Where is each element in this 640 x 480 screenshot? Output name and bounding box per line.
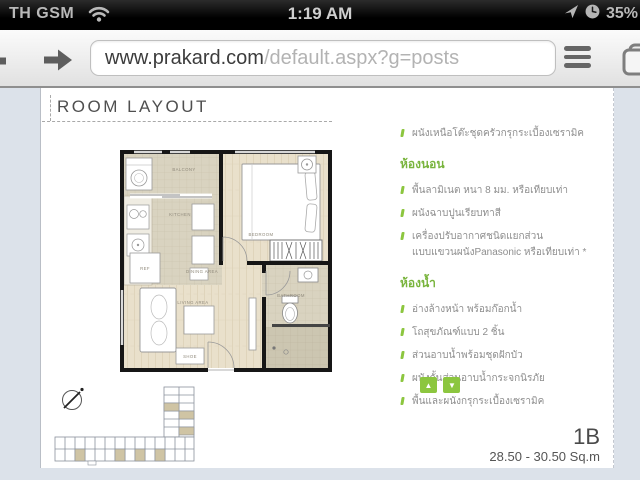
browser-toolbar: www.prakard.com/default.aspx?g=posts	[0, 30, 640, 88]
bullet-tick-icon	[400, 351, 404, 359]
bullet-tick-icon	[400, 186, 404, 194]
bullet-tick-icon	[400, 129, 404, 137]
spec-section-bathroom: ห้องน้ำ	[400, 274, 612, 293]
bullet-tick-icon	[400, 209, 404, 217]
bullet-tick-icon	[400, 305, 404, 313]
unit-nav: ▲ ▼	[420, 377, 462, 395]
url-text: www.prakard.com/default.aspx?g=posts	[91, 41, 555, 75]
spec-item: พื้นลามิเนต หนา 8 มม. หรือเทียบเท่า	[400, 185, 612, 197]
nav-up-button[interactable]: ▲	[420, 377, 437, 393]
room-label-bedroom: BEDROOM	[248, 232, 273, 237]
tabs-icon[interactable]	[622, 42, 640, 76]
unit-info: 1B 28.50 - 30.50 Sq.m	[450, 426, 600, 466]
nav-down-button[interactable]: ▼	[443, 377, 460, 393]
unit-type-label: 1B	[450, 426, 600, 448]
room-label-living: LIVING AREA	[177, 300, 208, 305]
clock-time: 1:19 AM	[0, 4, 640, 24]
room-label-shoe: SHOE	[183, 354, 197, 359]
bullet-tick-icon	[400, 397, 404, 405]
bullet-tick-icon	[400, 232, 404, 240]
back-icon[interactable]	[0, 48, 8, 74]
url-field[interactable]: www.prakard.com/default.aspx?g=posts	[90, 40, 556, 76]
unit-area-label: 28.50 - 30.50 Sq.m	[450, 448, 600, 466]
title-underline	[42, 121, 332, 122]
url-path: /default.aspx?g=posts	[264, 47, 459, 69]
status-bar: TH GSM 1:19 AM 35%	[0, 0, 640, 30]
spec-item: พื้นและผนังกรุกระเบื้องเซรามิค	[400, 396, 612, 408]
bullet-tick-icon	[400, 374, 404, 382]
spec-item: โถสุขภัณฑ์แบบ 2 ชิ้น	[400, 327, 612, 339]
menu-icon[interactable]	[564, 46, 592, 70]
location-arrow-icon	[564, 4, 579, 24]
alarm-clock-icon	[585, 4, 600, 24]
spec-list: ผนังเหนือโต๊ะชุดครัวกรุกระเบื้องเซรามิค …	[400, 128, 612, 419]
forward-icon[interactable]	[42, 47, 76, 73]
spec-item: อ่างล้างหน้า พร้อมก๊อกน้ำ	[400, 304, 612, 316]
room-label-kitchen: KITCHEN	[169, 212, 191, 217]
url-host: www.prakard.com	[105, 47, 264, 69]
room-label-bathroom: BATHROOM	[277, 293, 305, 298]
bullet-tick-icon	[400, 328, 404, 336]
building-key-plan	[52, 385, 257, 467]
spec-item: เครื่องปรับอากาศชนิดแยกส่วน	[400, 231, 612, 243]
spec-item: ผนังฉาบปูนเรียบทาสี	[400, 208, 612, 220]
page-title: ROOM LAYOUT	[57, 97, 209, 117]
spec-item-continuation: แบบแขวนผนังPanasonic หรือเทียบเท่า *	[400, 247, 612, 259]
room-label-ref: REF	[140, 266, 150, 271]
title-sideline	[50, 95, 51, 121]
room-label-balcony: BALCONY	[172, 167, 195, 172]
room-label-dining: DINING AREA	[186, 269, 218, 274]
spec-section-bedroom: ห้องนอน	[400, 155, 612, 174]
battery-percent: 35%	[606, 5, 638, 23]
spec-item: ส่วนอาบน้ำพร้อมชุดฝักบัว	[400, 350, 612, 362]
compass-icon	[63, 388, 84, 410]
spec-item: ผนังเหนือโต๊ะชุดครัวกรุกระเบื้องเซรามิค	[400, 128, 612, 140]
floor-plan-image: BALCONY KITCHEN DINING AREA REF LIVING A…	[120, 150, 332, 372]
